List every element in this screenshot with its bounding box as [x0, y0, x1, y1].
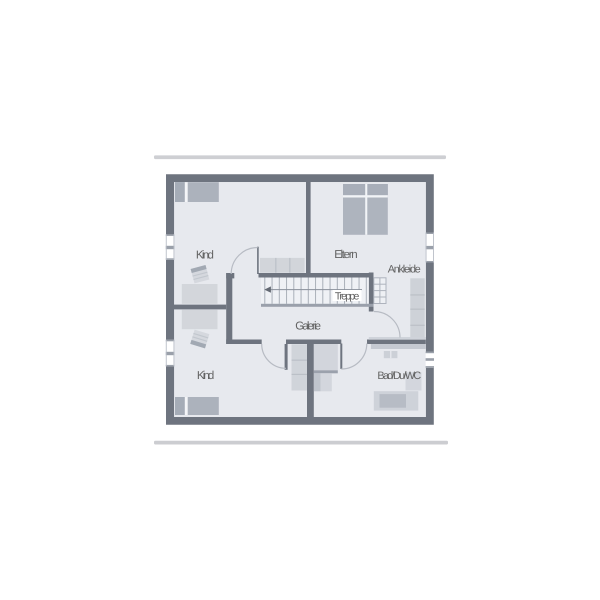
svg-text:Eltern: Eltern: [334, 249, 357, 261]
svg-text:Kind: Kind: [197, 370, 214, 382]
svg-text:Kind: Kind: [196, 249, 214, 261]
svg-text:Treppe: Treppe: [335, 290, 360, 302]
svg-text:Bad/Du/WC: Bad/Du/WC: [377, 370, 421, 382]
svg-text:Ankleide: Ankleide: [388, 263, 421, 275]
svg-text:Galerie: Galerie: [295, 321, 321, 333]
